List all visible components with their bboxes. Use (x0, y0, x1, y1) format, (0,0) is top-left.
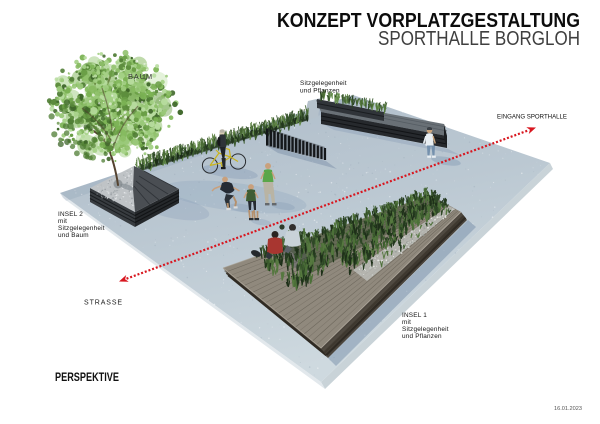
svg-text:SPORTHALLE BORGLOH: SPORTHALLE BORGLOH (378, 28, 580, 50)
svg-text:INSEL 1: INSEL 1 (402, 312, 427, 319)
svg-text:PERSPEKTIVE: PERSPEKTIVE (55, 370, 119, 384)
svg-text:Sitzgelegenheit: Sitzgelegenheit (58, 225, 105, 232)
svg-text:und Pflanzen: und Pflanzen (300, 88, 340, 95)
svg-text:mit: mit (58, 218, 67, 225)
svg-text:INSEL 2: INSEL 2 (58, 211, 83, 218)
svg-text:STRASSE: STRASSE (84, 300, 123, 307)
svg-text:EINGANG SPORTHALLE: EINGANG SPORTHALLE (497, 114, 568, 121)
svg-text:und Baum: und Baum (58, 232, 89, 239)
svg-text:mit: mit (402, 319, 411, 326)
svg-text:Sitzgelegenheit: Sitzgelegenheit (300, 80, 347, 87)
svg-text:und Pflanzen: und Pflanzen (402, 333, 442, 340)
svg-text:Sitzgelegenheit: Sitzgelegenheit (402, 326, 449, 333)
svg-text:16.01.2023: 16.01.2023 (554, 406, 582, 412)
svg-text:BAUM: BAUM (128, 72, 153, 81)
